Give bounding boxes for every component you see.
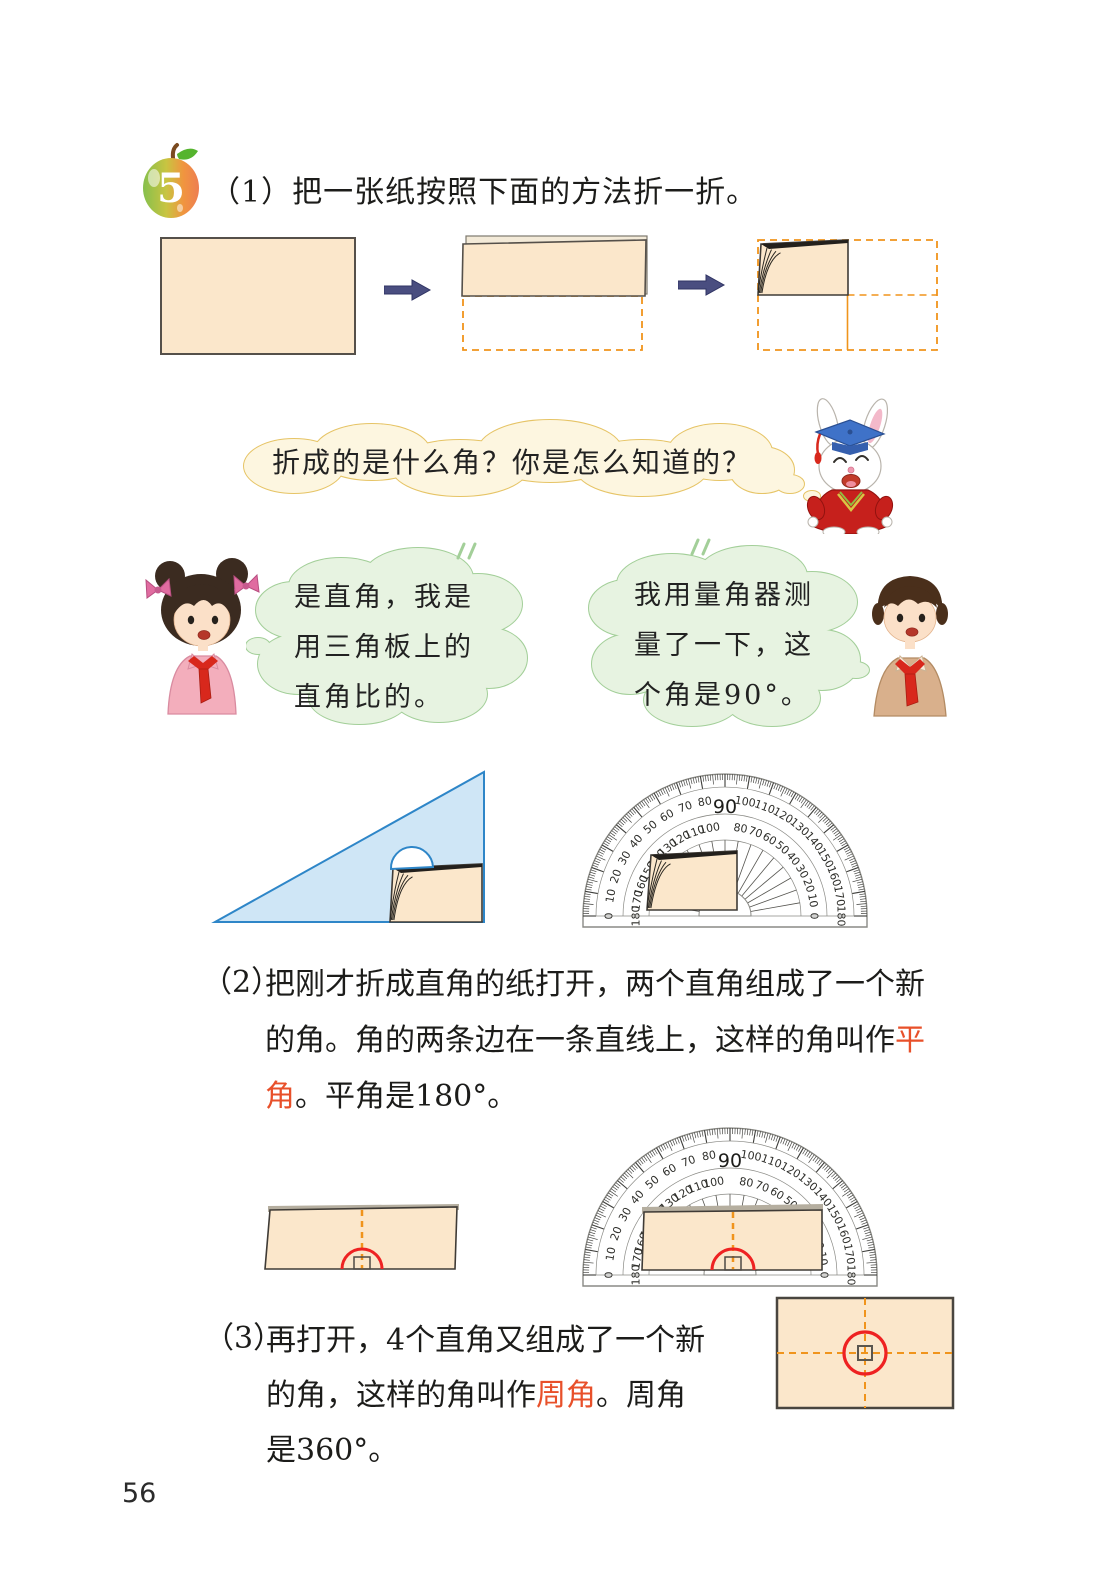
girl-student-figure	[140, 556, 260, 716]
page-number: 56	[122, 1478, 156, 1509]
svg-text:80: 80	[732, 821, 748, 836]
svg-text:0: 0	[808, 913, 821, 920]
svg-text:80: 80	[701, 1148, 717, 1163]
svg-text:10: 10	[603, 888, 618, 904]
boy-speech-text: 我用量角器测 量了一下，这 个角是90°。	[634, 571, 814, 721]
paper-folded-half-diagram	[455, 230, 655, 356]
arrow-right-icon	[678, 272, 726, 298]
set-square-check-diagram	[200, 758, 522, 930]
svg-text:0: 0	[603, 1272, 616, 1279]
paper-unfolded-diagram	[160, 237, 356, 355]
svg-text:80: 80	[738, 1175, 754, 1190]
svg-text:10: 10	[805, 893, 820, 909]
svg-text:0: 0	[818, 1272, 831, 1279]
svg-text:0: 0	[603, 913, 616, 920]
paragraph-2-text: 把刚才折成直角的纸打开，两个直角组成了一个新 的角。角的两条边在一条直线上，这样…	[265, 957, 925, 1125]
protractor-180-diagram: 0102030405060708010011012013014015016017…	[578, 1116, 890, 1292]
svg-text:90: 90	[713, 796, 737, 818]
paper-folded-quarter-diagram	[752, 232, 946, 354]
svg-text:80: 80	[697, 794, 713, 809]
rabbit-mascot-figure	[780, 392, 920, 534]
straight-angle-paper-diagram	[258, 1198, 466, 1282]
svg-text:180: 180	[845, 1265, 858, 1286]
arrow-right-icon	[384, 277, 432, 303]
rabbit-question-text: 折成的是什么角？你是怎么知道的？	[262, 441, 762, 481]
svg-text:180: 180	[835, 906, 848, 927]
girl-speech-text: 是直角，我是 用三角板上的 直角比的。	[294, 573, 474, 723]
paragraph-3-text: 再打开，4个直角又组成了一个新 的角，这样的角叫作周角。周角 是360°。	[266, 1313, 705, 1478]
svg-text:90: 90	[718, 1150, 742, 1172]
boy-student-figure	[852, 556, 967, 718]
svg-text:10: 10	[603, 1246, 618, 1262]
badge-number: 5	[157, 165, 185, 212]
apple-badge-icon: 5	[138, 142, 204, 222]
protractor-90-diagram: 0102030405060708010011012013014015016017…	[565, 748, 910, 934]
textbook-page: 5 （1）把一张纸按照下面的方法折一折。 折成的是什么角？你是怎么知道的？ 是直…	[0, 0, 1111, 1571]
problem-statement-1: （1）把一张纸按照下面的方法折一折。	[210, 167, 757, 211]
full-angle-paper-diagram	[775, 1295, 961, 1417]
